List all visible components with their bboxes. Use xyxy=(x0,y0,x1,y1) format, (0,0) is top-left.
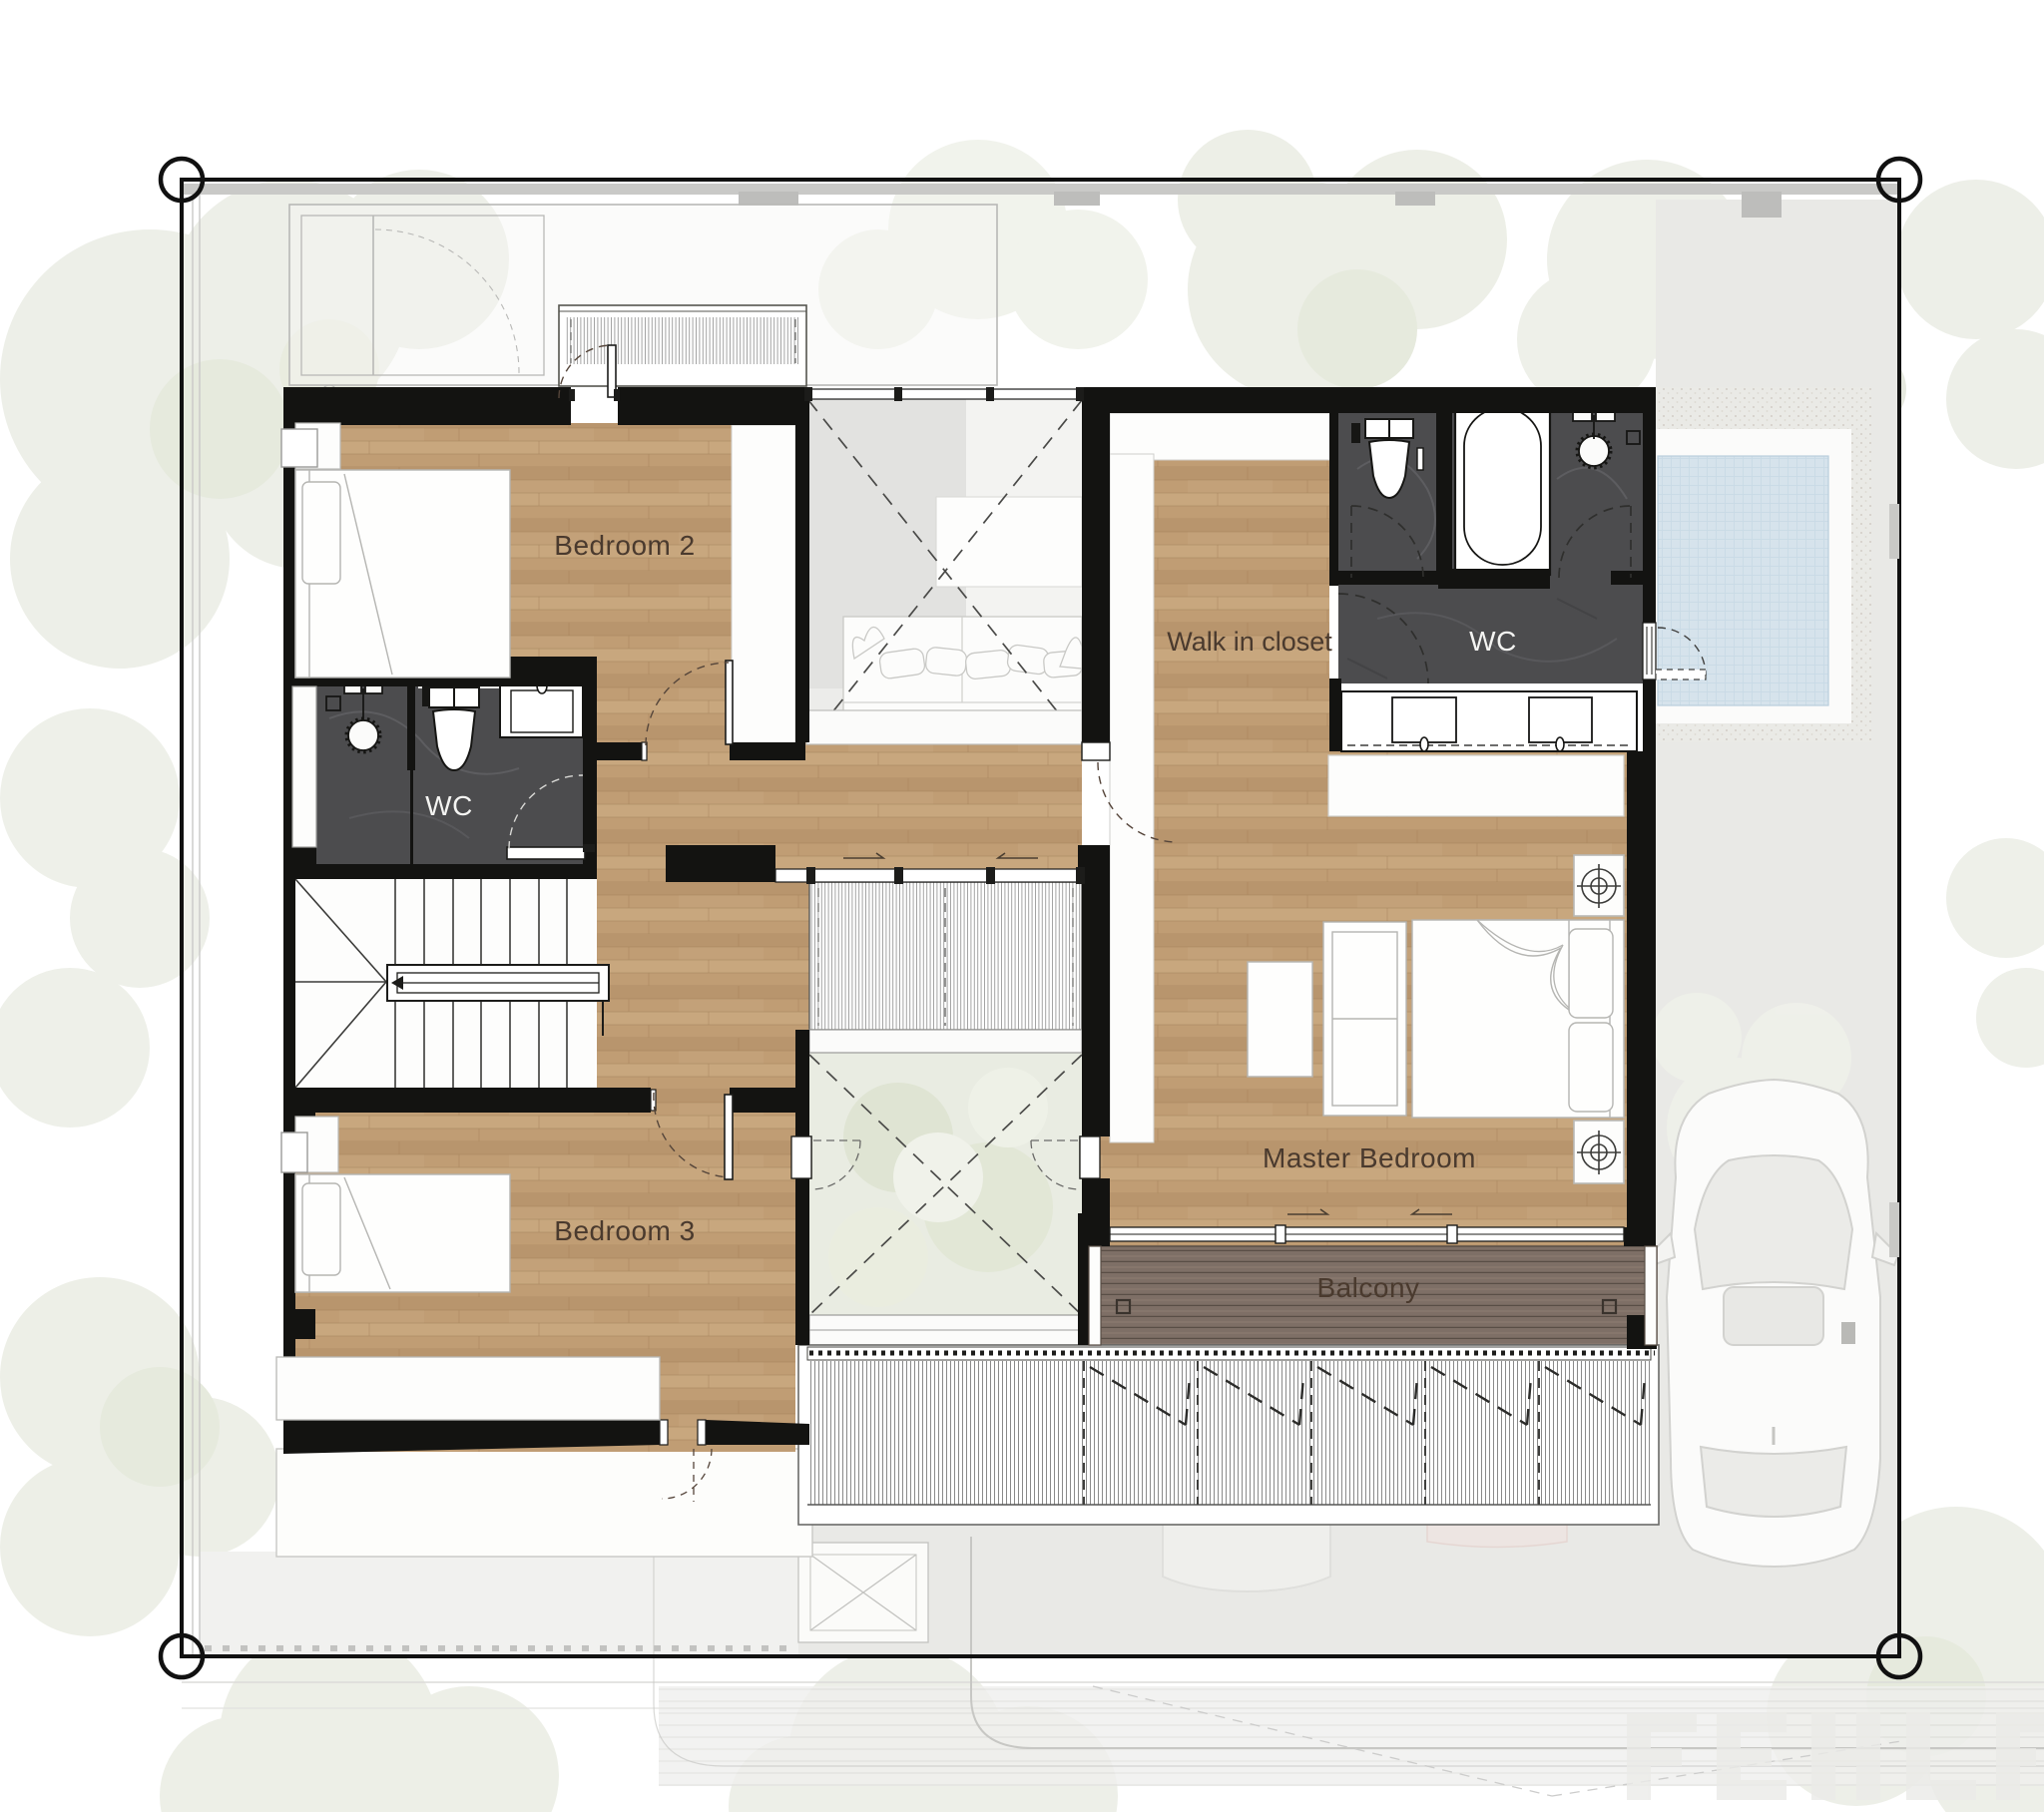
svg-text:Master Bedroom: Master Bedroom xyxy=(1263,1142,1476,1173)
svg-text:Balcony: Balcony xyxy=(1316,1272,1419,1303)
svg-text:Bedroom 3: Bedroom 3 xyxy=(554,1215,695,1246)
svg-text:Walk in closet: Walk in closet xyxy=(1167,627,1332,657)
svg-text:WC: WC xyxy=(1469,626,1517,657)
svg-text:Bedroom 2: Bedroom 2 xyxy=(554,530,695,561)
svg-text:WC: WC xyxy=(425,790,473,821)
